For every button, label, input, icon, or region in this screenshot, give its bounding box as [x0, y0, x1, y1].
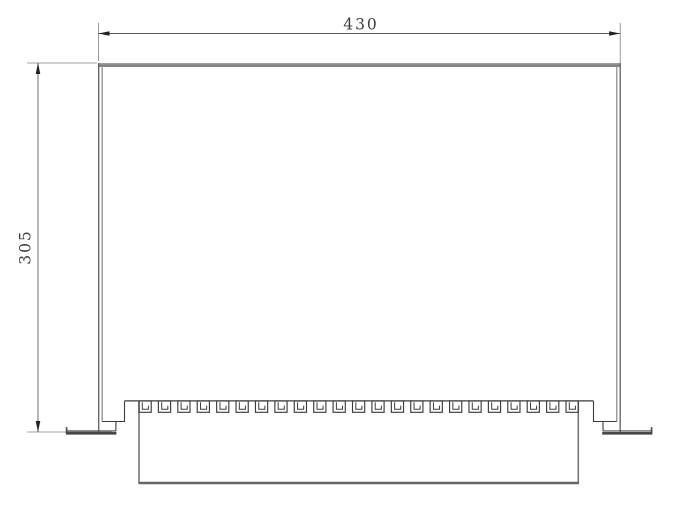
clip-tooth-hook	[298, 402, 304, 409]
drawing-sheet: 430 305	[0, 0, 680, 510]
clip-tooth-outline	[488, 401, 500, 412]
clip-tooth-hook	[472, 402, 478, 409]
clip-tooth	[197, 401, 209, 412]
clip-tooth	[217, 401, 229, 412]
clip-tooth-outline	[178, 401, 190, 412]
clip-tooth-hook	[453, 402, 459, 409]
clip-tooth-outline	[294, 401, 306, 412]
clip-tooth	[469, 401, 481, 412]
clip-tooth	[450, 401, 462, 412]
clip-tooth	[411, 401, 423, 412]
clip-tooth-outline	[391, 401, 403, 412]
clip-tooth-outline	[139, 401, 151, 412]
clip-tooth	[178, 401, 190, 412]
clip-tooth-hook	[395, 402, 401, 409]
arrowhead-left-icon	[99, 31, 110, 36]
clip-tooth-hook	[433, 402, 439, 409]
right-foot-flange	[602, 427, 652, 433]
clip-tooth	[566, 401, 578, 412]
clip-tooth-outline	[566, 401, 578, 412]
clip-tooth	[275, 401, 287, 412]
clip-tooth-hook	[550, 402, 556, 409]
clip-tooth-outline	[236, 401, 248, 412]
clip-tooth-outline	[469, 401, 481, 412]
clip-tooth	[372, 401, 384, 412]
clip-tooth-outline	[527, 401, 539, 412]
clip-tooth-outline	[333, 401, 345, 412]
clip-tooth	[353, 401, 365, 412]
clip-tooth-hook	[317, 402, 323, 409]
clip-tooth-outline	[450, 401, 462, 412]
clip-tooth	[255, 401, 267, 412]
clip-tooth	[314, 401, 326, 412]
clip-tooth	[294, 401, 306, 412]
clip-tooth-outline	[353, 401, 365, 412]
clip-tooth-outline	[275, 401, 287, 412]
dimension-width-label: 430	[343, 16, 379, 34]
dimension-height: 305	[17, 63, 113, 432]
technical-drawing: 430 305	[0, 0, 680, 510]
dimension-width: 430	[99, 16, 621, 64]
clip-tooth-hook	[511, 402, 517, 409]
clip-tooth-outline	[547, 401, 559, 412]
clip-tooth-outline	[508, 401, 520, 412]
left-foot-flange	[66, 427, 117, 433]
clip-tooth-hook	[414, 402, 420, 409]
clip-tooth	[488, 401, 500, 412]
clip-tooth-hook	[278, 402, 284, 409]
clip-tooth-hook	[239, 402, 245, 409]
teeth-row	[139, 401, 578, 412]
clip-tooth	[139, 401, 151, 412]
right-bottom-step	[594, 401, 617, 422]
clip-tooth-hook	[375, 402, 381, 409]
arrowhead-up-icon	[36, 63, 41, 74]
clip-tooth-hook	[181, 402, 187, 409]
bottom-connector-box	[138, 401, 579, 483]
clip-tooth	[333, 401, 345, 412]
clip-tooth	[547, 401, 559, 412]
clip-tooth-hook	[142, 402, 148, 409]
clip-tooth-hook	[569, 402, 575, 409]
clip-tooth-hook	[162, 402, 168, 409]
clip-tooth	[236, 401, 248, 412]
clip-tooth	[527, 401, 539, 412]
left-bottom-step	[102, 401, 124, 422]
clip-tooth-hook	[531, 402, 537, 409]
clip-tooth-hook	[220, 402, 226, 409]
clip-tooth	[391, 401, 403, 412]
clip-tooth-outline	[430, 401, 442, 412]
clip-tooth-outline	[217, 401, 229, 412]
clip-tooth-outline	[255, 401, 267, 412]
clip-tooth-outline	[411, 401, 423, 412]
clip-tooth-outline	[372, 401, 384, 412]
clip-tooth-hook	[259, 402, 265, 409]
arrowhead-down-icon	[36, 421, 41, 432]
enclosure-body	[66, 63, 652, 434]
arrowhead-right-icon	[609, 31, 620, 36]
clip-tooth-hook	[492, 402, 498, 409]
clip-tooth	[430, 401, 442, 412]
clip-tooth	[158, 401, 170, 412]
dimension-height-label: 305	[17, 229, 35, 265]
clip-tooth	[508, 401, 520, 412]
clip-tooth-outline	[158, 401, 170, 412]
clip-tooth-outline	[314, 401, 326, 412]
clip-tooth-hook	[336, 402, 342, 409]
clip-tooth-hook	[356, 402, 362, 409]
clip-tooth-hook	[201, 402, 207, 409]
clip-tooth-outline	[197, 401, 209, 412]
